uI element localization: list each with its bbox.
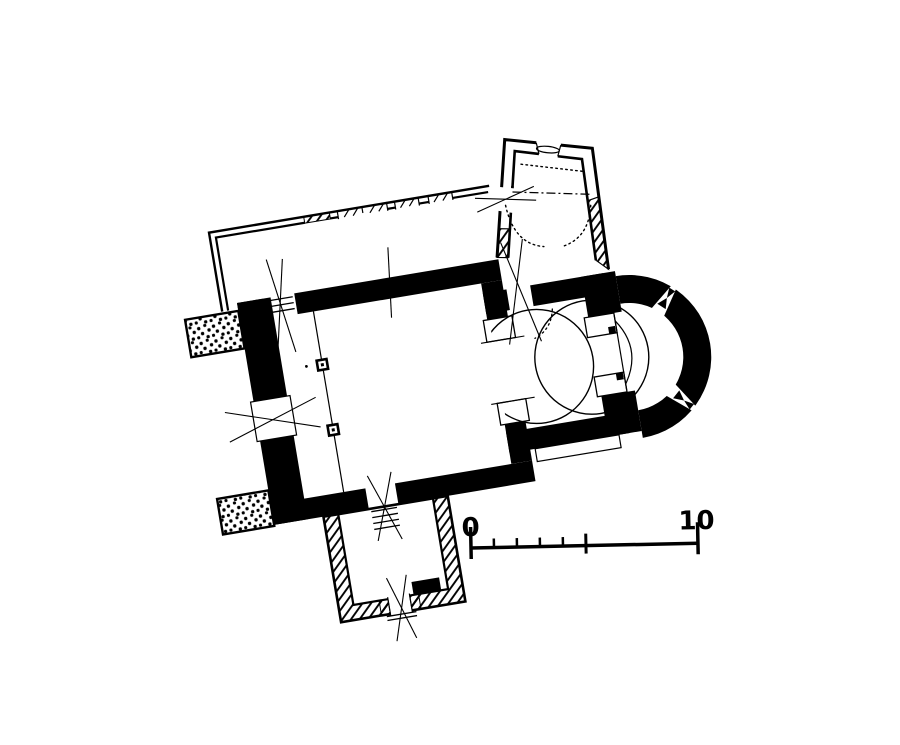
buttress-northwest [185, 311, 245, 357]
chancel-north-wall-west [483, 289, 510, 314]
buttress-southwest [217, 490, 274, 534]
apse-impost-north [608, 326, 616, 334]
apse-arch-north-pier [581, 271, 621, 317]
scale-label-end: 10 [678, 506, 715, 537]
paper-background [0, 0, 900, 745]
apse-impost-south [616, 372, 624, 380]
scale-label-start: 0 [461, 513, 480, 543]
apse-arch-south-pier [601, 391, 641, 437]
floor-plan-drawing: 0 10 [0, 0, 900, 745]
apse-arch-jamb-north [584, 313, 617, 338]
floor-plan-page: 0 10 [0, 0, 900, 745]
